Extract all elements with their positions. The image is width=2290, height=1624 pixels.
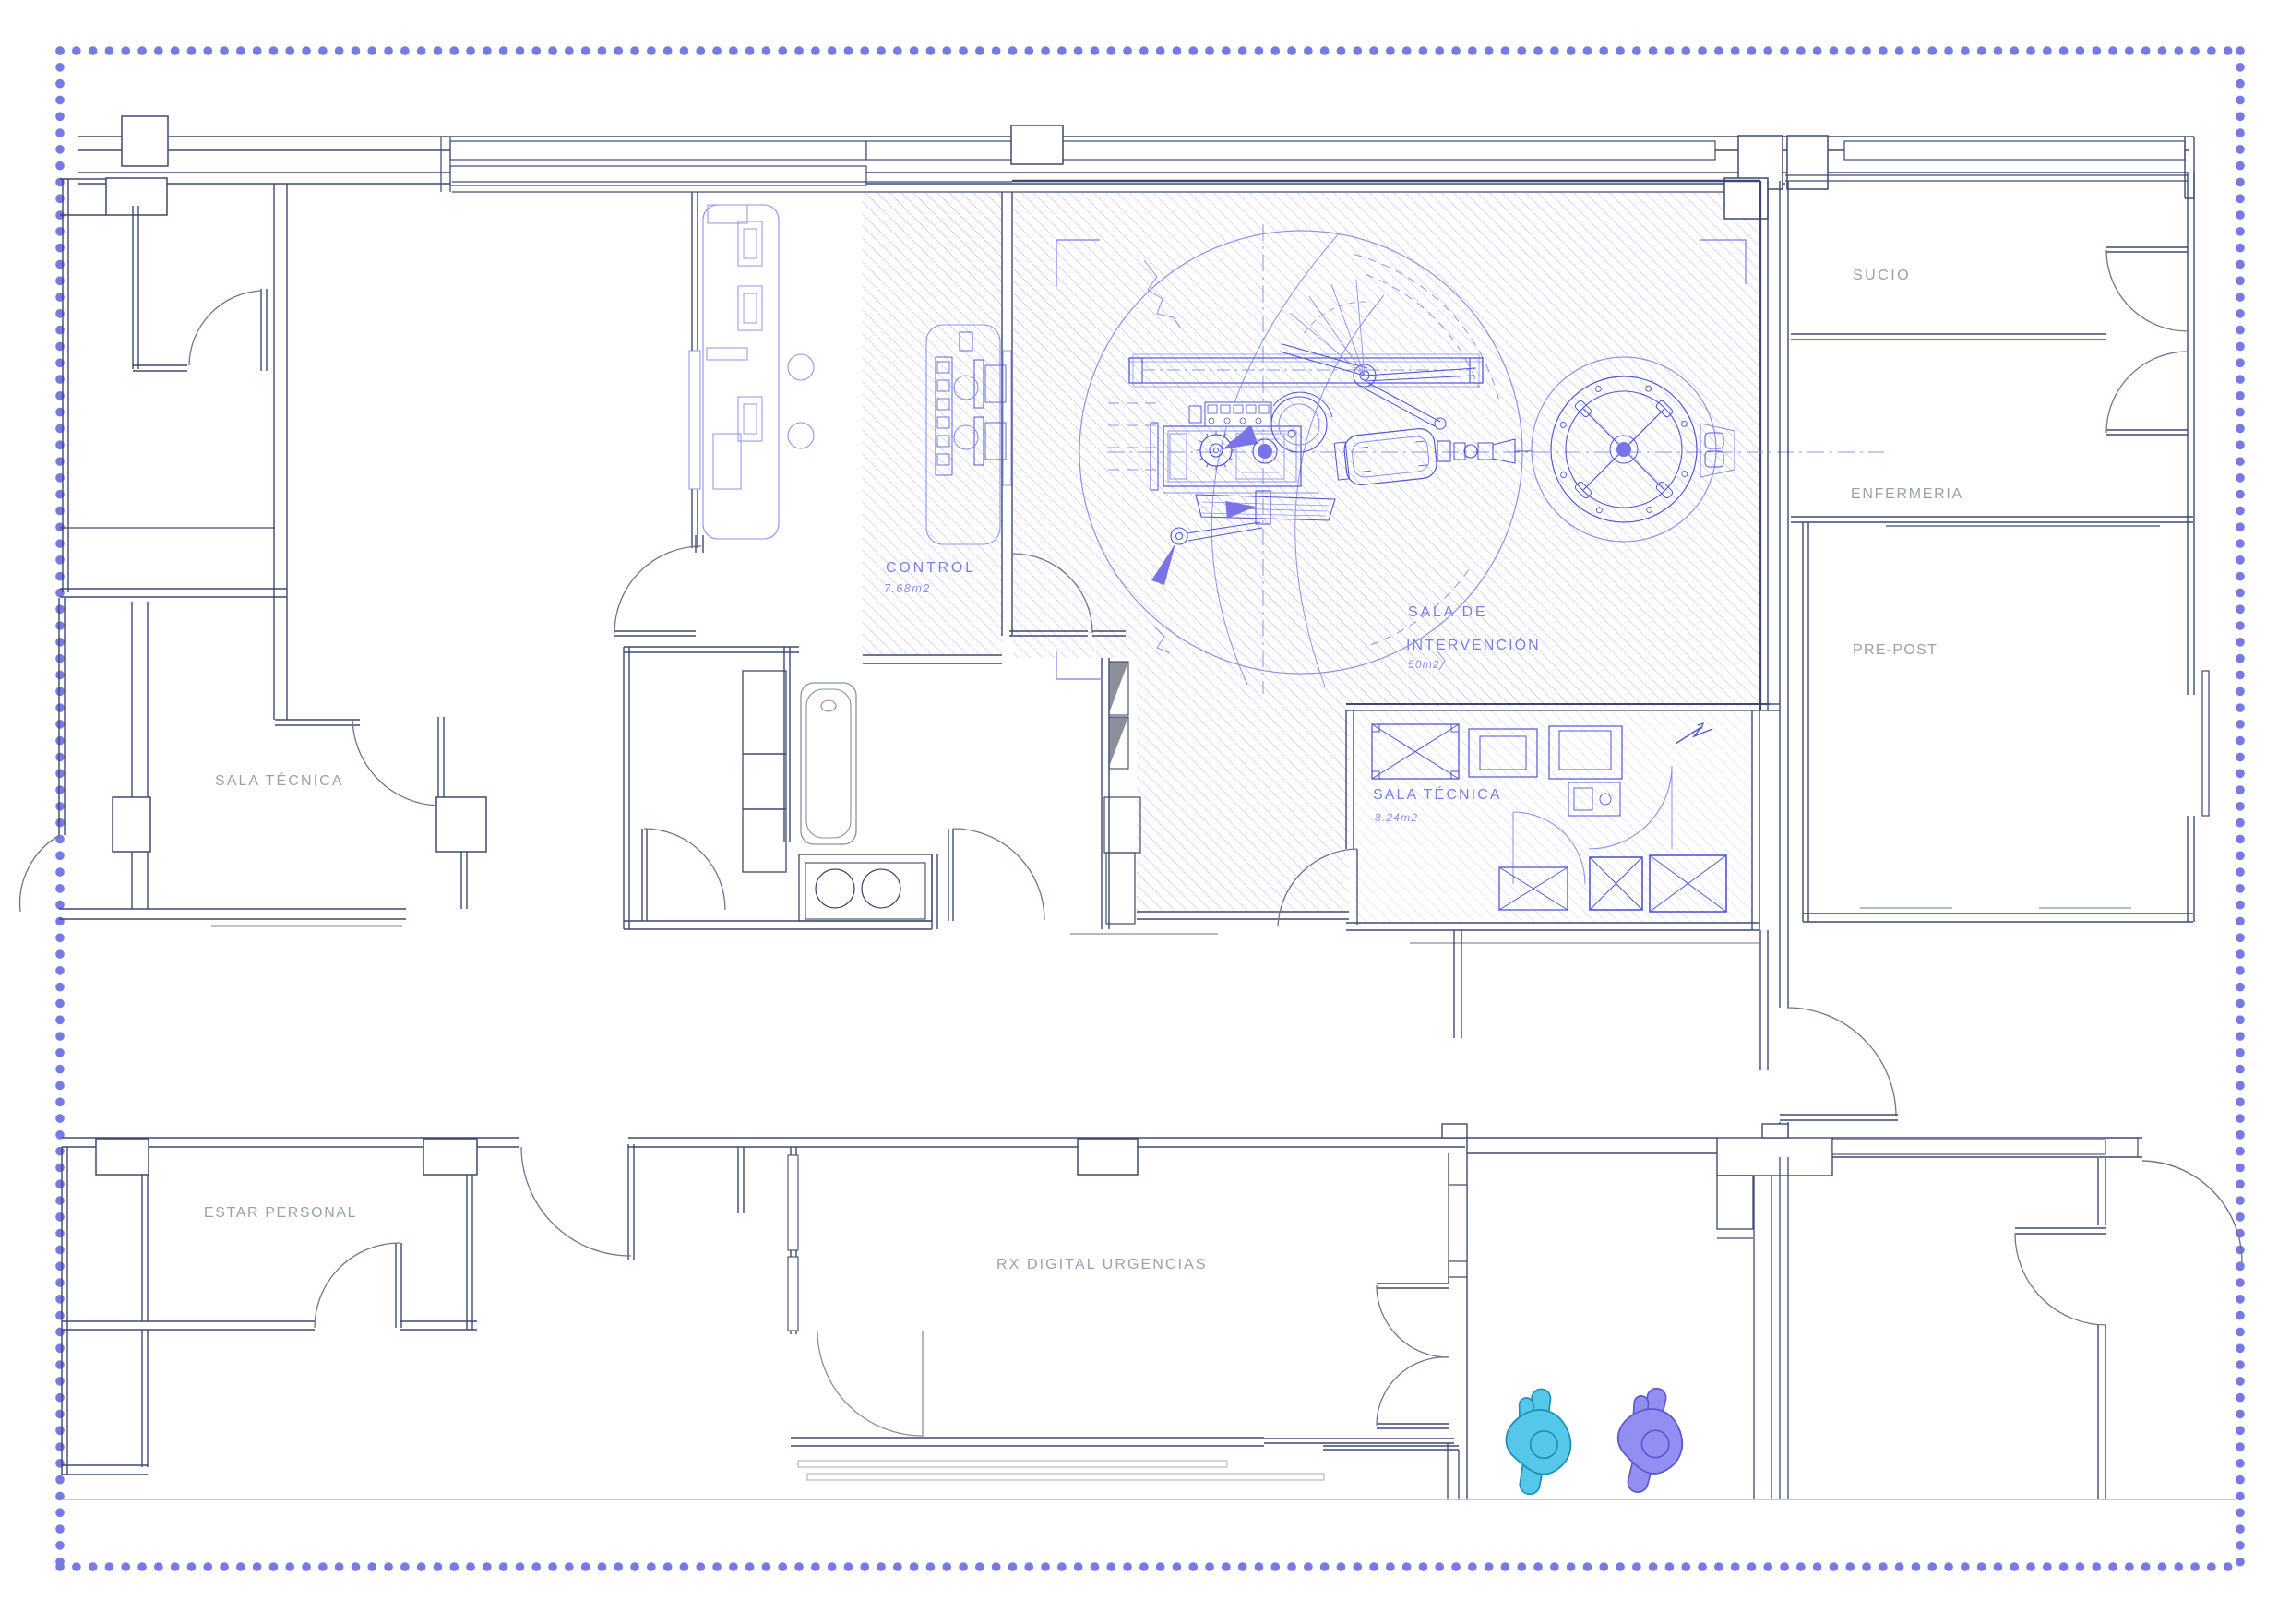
svg-text:PRE-POST: PRE-POST [1853, 642, 1938, 658]
svg-text:SALA TÉCNICA: SALA TÉCNICA [215, 771, 344, 789]
svg-text:8.24m2: 8.24m2 [1375, 811, 1418, 824]
svg-text:SALA TÉCNICA: SALA TÉCNICA [1373, 785, 1502, 803]
svg-text:7.68m2: 7.68m2 [884, 581, 931, 595]
svg-text:RX DIGITAL URGENCIAS: RX DIGITAL URGENCIAS [996, 1257, 1208, 1272]
svg-text:50m2: 50m2 [1408, 658, 1440, 671]
svg-text:SUCIO: SUCIO [1853, 268, 1911, 283]
svg-text:ESTAR PERSONAL: ESTAR PERSONAL [204, 1205, 357, 1221]
svg-text:ENFERMERIA: ENFERMERIA [1851, 486, 1963, 502]
svg-text:CONTROL: CONTROL [886, 560, 976, 576]
svg-text:INTERVENCIÓN: INTERVENCIÓN [1406, 636, 1541, 653]
